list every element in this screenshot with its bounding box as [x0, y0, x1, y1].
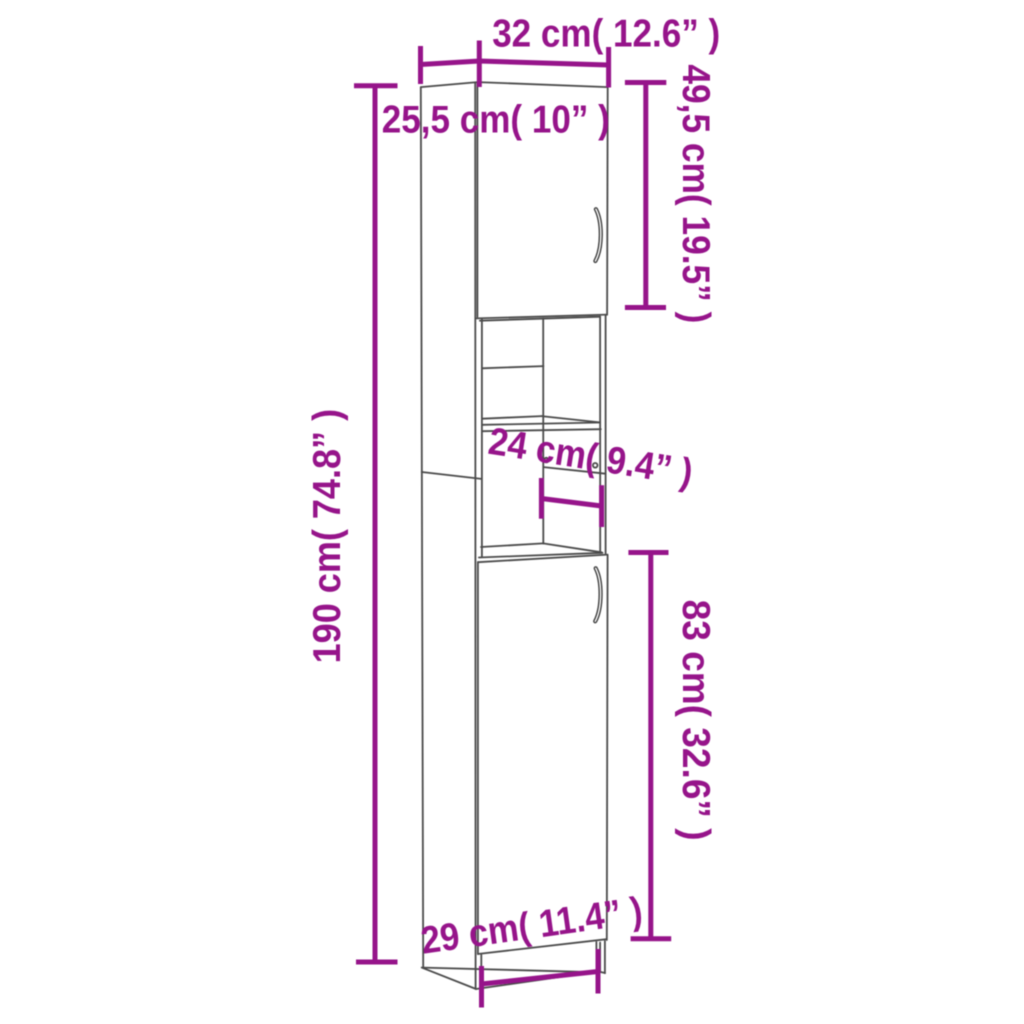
svg-text:49,5 cm( 19.5” ): 49,5 cm( 19.5” ) [674, 64, 717, 323]
svg-text:25,5 cm( 10” ): 25,5 cm( 10” ) [382, 99, 610, 142]
svg-text:83 cm( 32.6” ): 83 cm( 32.6” ) [674, 600, 717, 841]
svg-text:190 cm( 74.8” ): 190 cm( 74.8” ) [306, 409, 349, 664]
svg-text:32 cm( 12.6” ): 32 cm( 12.6” ) [492, 13, 720, 56]
svg-text:29 cm( 11.4” ): 29 cm( 11.4” ) [418, 889, 645, 963]
svg-text:24 cm( 9.4” ): 24 cm( 9.4” ) [486, 420, 696, 495]
